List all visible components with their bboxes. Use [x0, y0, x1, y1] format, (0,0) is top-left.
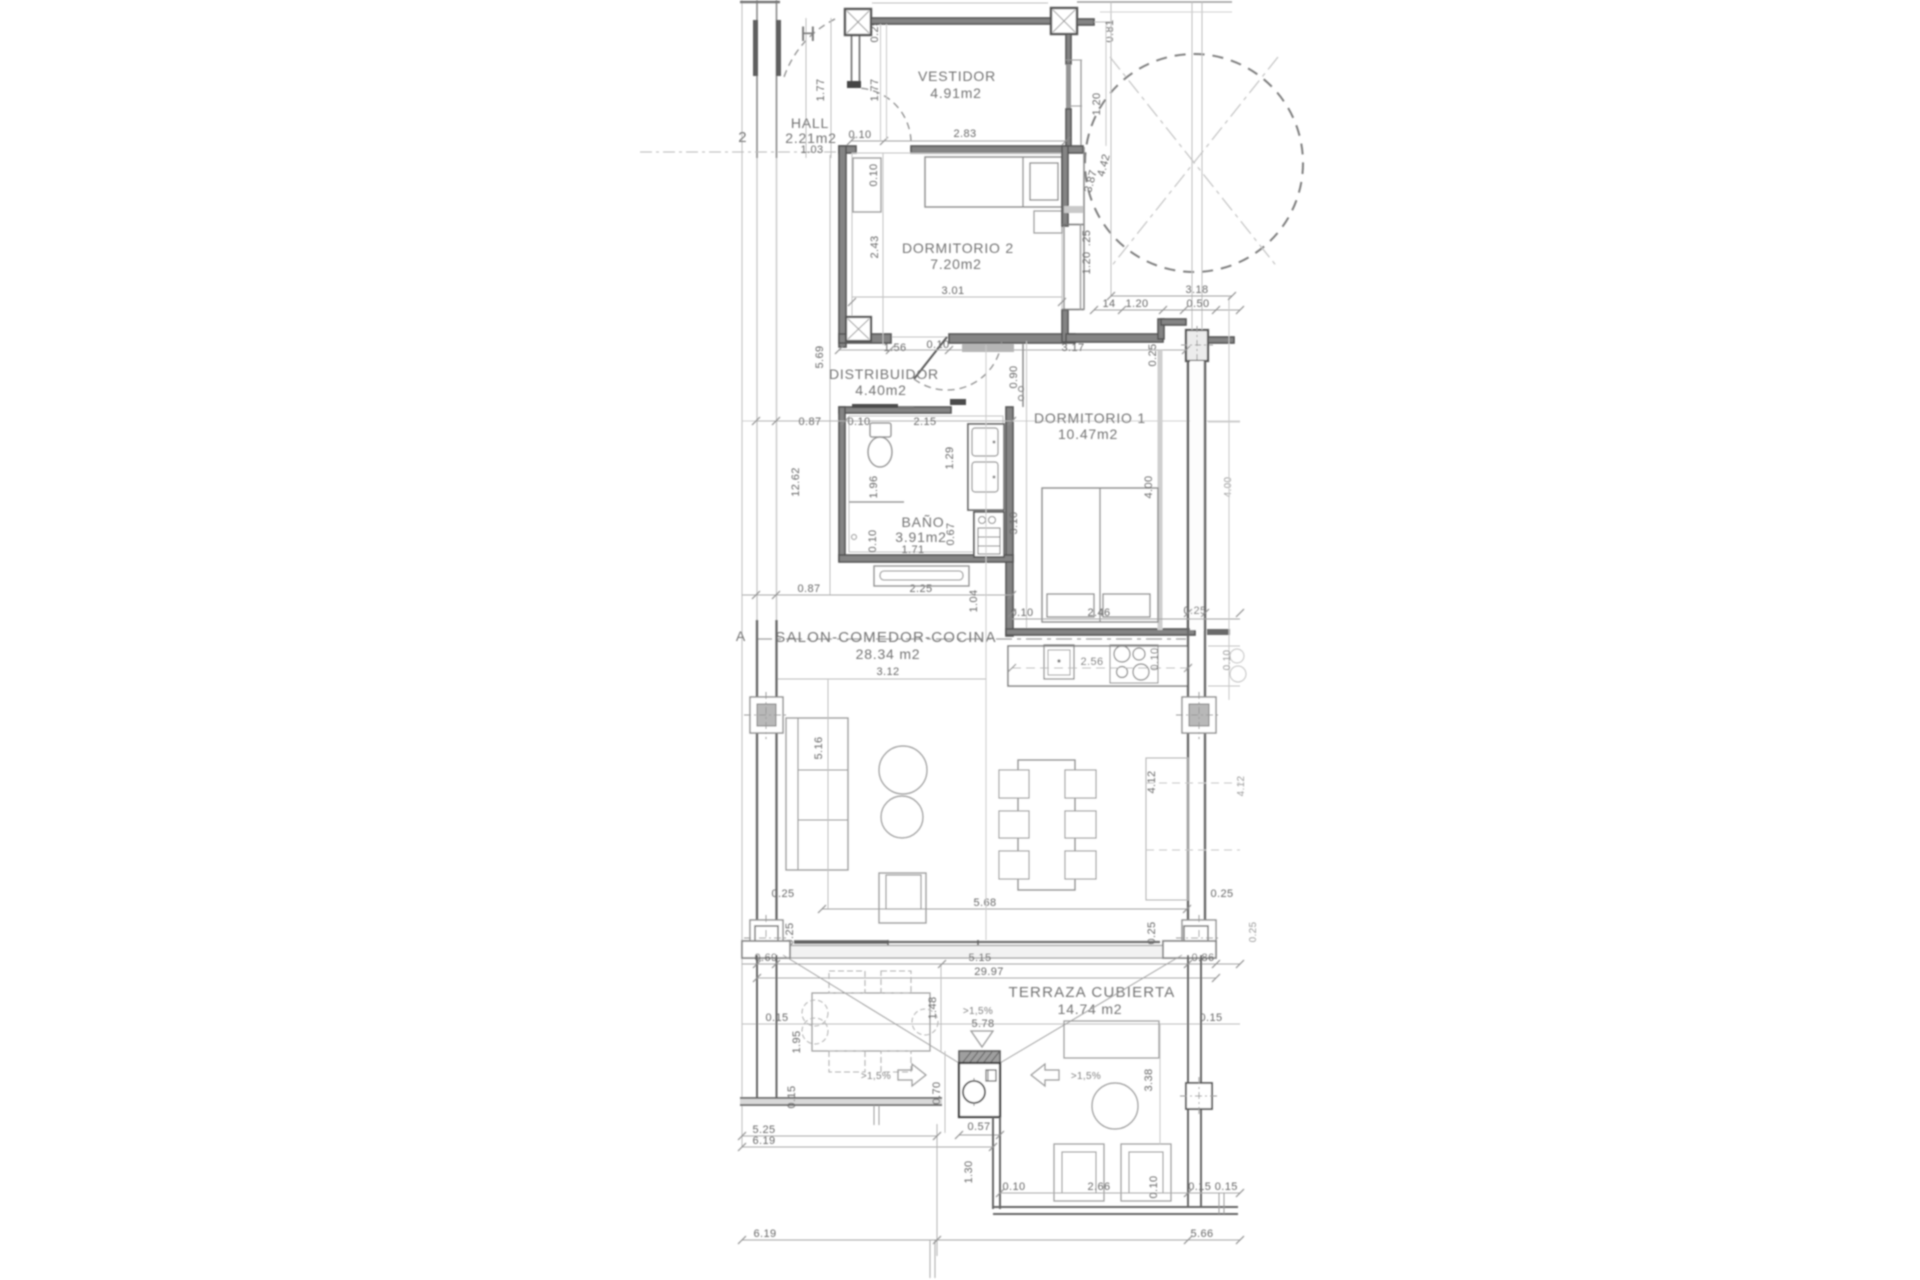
svg-text:2.25: 2.25 [909, 583, 932, 595]
svg-text:H: H [800, 23, 815, 46]
svg-text:1.04: 1.04 [968, 589, 980, 612]
svg-text:0.87: 0.87 [798, 416, 821, 428]
svg-text:0.10: 0.10 [1222, 650, 1233, 671]
svg-text:>1,5%: >1,5% [861, 1071, 891, 1082]
svg-text:3.17: 3.17 [1061, 342, 1084, 354]
svg-text:0.10: 0.10 [1149, 647, 1161, 670]
svg-text:4.12: 4.12 [1146, 770, 1158, 793]
svg-text:0.25: 0.25 [771, 888, 794, 900]
svg-text:1.77: 1.77 [869, 78, 881, 101]
svg-text:DORMITORIO 2: DORMITORIO 2 [902, 240, 1014, 256]
svg-text:2.46: 2.46 [1087, 607, 1110, 619]
svg-text:0.10: 0.10 [1148, 1175, 1160, 1198]
svg-text:0.57: 0.57 [967, 1121, 990, 1133]
svg-text:3.01: 3.01 [941, 285, 964, 297]
svg-text:1.71: 1.71 [901, 544, 924, 556]
svg-text:12.62: 12.62 [790, 467, 802, 497]
svg-text:0.25: 0.25 [1147, 343, 1159, 366]
svg-text:2.15: 2.15 [913, 416, 936, 428]
svg-text:10.47m2: 10.47m2 [1058, 426, 1118, 442]
svg-text:29.97: 29.97 [974, 966, 1004, 978]
svg-text:0.10: 0.10 [848, 129, 871, 141]
svg-text:1.20: 1.20 [1081, 251, 1093, 274]
svg-text:1.77: 1.77 [815, 78, 827, 101]
svg-text:1.20: 1.20 [1125, 298, 1148, 310]
svg-text:0.50: 0.50 [1186, 298, 1209, 310]
svg-text:0.10: 0.10 [847, 416, 870, 428]
svg-text:.25: .25 [1081, 230, 1093, 247]
svg-text:2.83: 2.83 [953, 128, 976, 140]
svg-text:VESTIDOR: VESTIDOR [918, 68, 996, 84]
svg-text:1.48: 1.48 [927, 996, 939, 1019]
svg-text:4.91m2: 4.91m2 [930, 85, 982, 101]
svg-text:5.15: 5.15 [968, 952, 991, 964]
svg-text:3.10: 3.10 [1008, 511, 1020, 534]
svg-text:5.16: 5.16 [813, 736, 825, 759]
svg-text:4.40m2: 4.40m2 [855, 382, 907, 398]
svg-text:2.56: 2.56 [1080, 656, 1103, 668]
svg-text:0.10: 0.10 [868, 163, 880, 186]
svg-text:4.00: 4.00 [1143, 475, 1155, 498]
svg-text:0.67: 0.67 [945, 522, 957, 545]
svg-text:14.74 m2: 14.74 m2 [1058, 1001, 1123, 1017]
svg-text:2.43: 2.43 [869, 235, 881, 258]
svg-text:0.15 0.15: 0.15 0.15 [1188, 1181, 1237, 1193]
svg-text:1.96: 1.96 [868, 475, 880, 498]
svg-text:SALON-COMEDOR-COCINA: SALON-COMEDOR-COCINA [775, 629, 997, 646]
svg-text:DORMITORIO 1: DORMITORIO 1 [1034, 410, 1146, 426]
svg-text:1.30: 1.30 [963, 1160, 975, 1183]
svg-text:0.10: 0.10 [1002, 1181, 1025, 1193]
svg-text:7.20m2: 7.20m2 [930, 256, 982, 272]
svg-text:3.18: 3.18 [1185, 284, 1208, 296]
svg-text:0.10: 0.10 [867, 529, 879, 552]
svg-text:0.87: 0.87 [797, 583, 820, 595]
svg-text:5.66: 5.66 [1190, 1228, 1213, 1240]
svg-text:4.12: 4.12 [1236, 776, 1247, 797]
svg-text:0.70: 0.70 [931, 1081, 943, 1104]
svg-text:1.95: 1.95 [791, 1030, 803, 1053]
svg-text:A: A [736, 628, 746, 644]
svg-text:1.56: 1.56 [883, 342, 906, 354]
svg-text:TERRAZA CUBIERTA: TERRAZA CUBIERTA [1008, 984, 1175, 1001]
svg-text:3.12: 3.12 [876, 666, 899, 678]
svg-text:0.90: 0.90 [1008, 365, 1020, 388]
svg-text:5.69: 5.69 [814, 345, 826, 368]
svg-text:>1,5%: >1,5% [963, 1006, 993, 1017]
svg-text:HALL: HALL [791, 115, 829, 131]
svg-text:0.86: 0.86 [1191, 952, 1214, 964]
svg-text:1.29: 1.29 [944, 446, 956, 469]
svg-text:0.10: 0.10 [926, 339, 949, 351]
svg-text:0.25: 0.25 [1210, 888, 1233, 900]
svg-text:3.91m2: 3.91m2 [895, 529, 947, 545]
svg-text:28.34 m2: 28.34 m2 [856, 646, 921, 662]
svg-text:BAÑO: BAÑO [902, 514, 945, 530]
svg-text:0.15: 0.15 [786, 1085, 798, 1108]
svg-text:14: 14 [1102, 298, 1115, 310]
svg-text:6.19: 6.19 [752, 1135, 775, 1147]
svg-text:5.68: 5.68 [973, 897, 996, 909]
svg-text:2.66: 2.66 [1087, 1181, 1110, 1193]
svg-text:1.03: 1.03 [800, 144, 823, 156]
svg-text:0.15: 0.15 [1199, 1012, 1222, 1024]
svg-text:6.19: 6.19 [753, 1228, 776, 1240]
svg-text:0.10: 0.10 [1010, 607, 1033, 619]
svg-text:5.78: 5.78 [971, 1018, 994, 1030]
svg-text:DISTRIBUIDOR: DISTRIBUIDOR [829, 366, 939, 382]
svg-text:>1,5%: >1,5% [1071, 1071, 1101, 1082]
svg-text:0.25: 0.25 [1248, 922, 1259, 943]
svg-text:2: 2 [738, 129, 748, 146]
svg-text:3.38: 3.38 [1143, 1068, 1155, 1091]
